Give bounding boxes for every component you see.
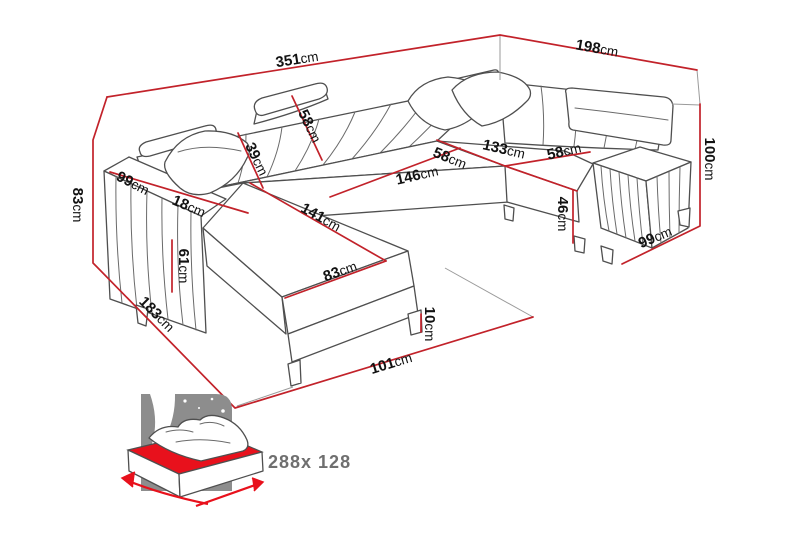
dim-label-total-depth-right: 198cm [574, 36, 619, 60]
dim-label-front-opening-width: 101cm [368, 349, 414, 378]
sleeping-area-size: 288x 128 [268, 452, 351, 472]
dim-label-total-height: 100cm [701, 137, 718, 180]
dim-label-total-width-back: 351cm [274, 48, 319, 72]
dim-label-left-seat-height: 61cm [175, 249, 192, 284]
dim-label-seat-height: 46cm [554, 197, 571, 232]
dim-label-left-back-height: 83cm [69, 188, 86, 223]
dim-label-leg-height: 10cm [421, 307, 438, 342]
sofa-bed-icon: 288x 128 [122, 394, 351, 506]
sofa-dimension-diagram: 351cm 198cm 83cm 99cm 18cm 61cm 183cm 58… [0, 0, 800, 533]
sofa-drawing [104, 35, 700, 406]
dimension-diagram-page: 351cm 198cm 83cm 99cm 18cm 61cm 183cm 58… [0, 0, 800, 533]
